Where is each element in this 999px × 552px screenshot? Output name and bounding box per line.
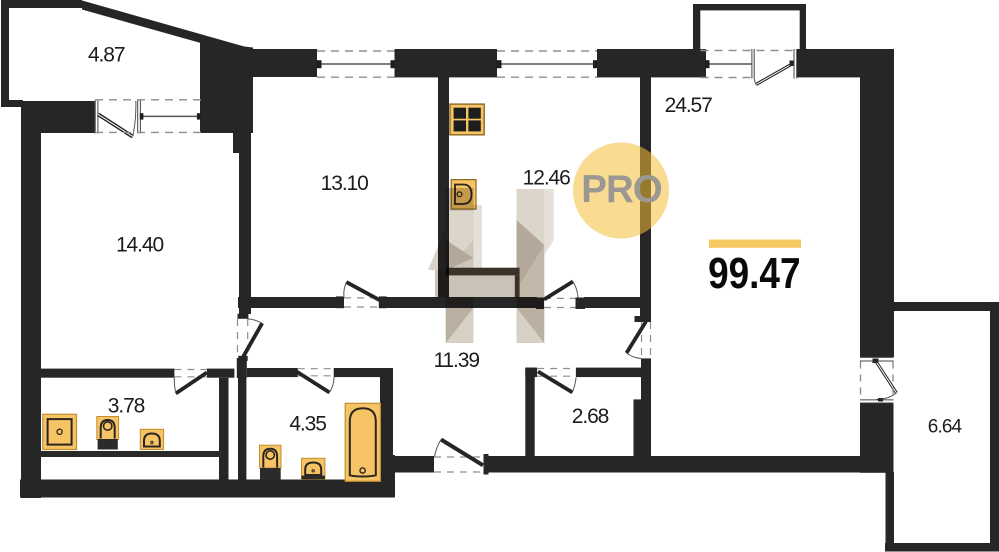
svg-text:11.39: 11.39: [433, 349, 479, 372]
svg-text:24.57: 24.57: [665, 94, 712, 117]
svg-text:14.40: 14.40: [116, 233, 163, 256]
svg-text:3.78: 3.78: [108, 395, 145, 418]
svg-text:4.87: 4.87: [88, 44, 125, 67]
svg-text:2.68: 2.68: [572, 405, 609, 428]
svg-text:6.64: 6.64: [928, 417, 963, 438]
svg-text:13.10: 13.10: [321, 172, 368, 195]
svg-text:4.35: 4.35: [289, 413, 326, 436]
svg-text:PRO: PRO: [581, 168, 661, 211]
svg-text:12.46: 12.46: [523, 167, 570, 190]
svg-text:99.47: 99.47: [708, 248, 800, 298]
